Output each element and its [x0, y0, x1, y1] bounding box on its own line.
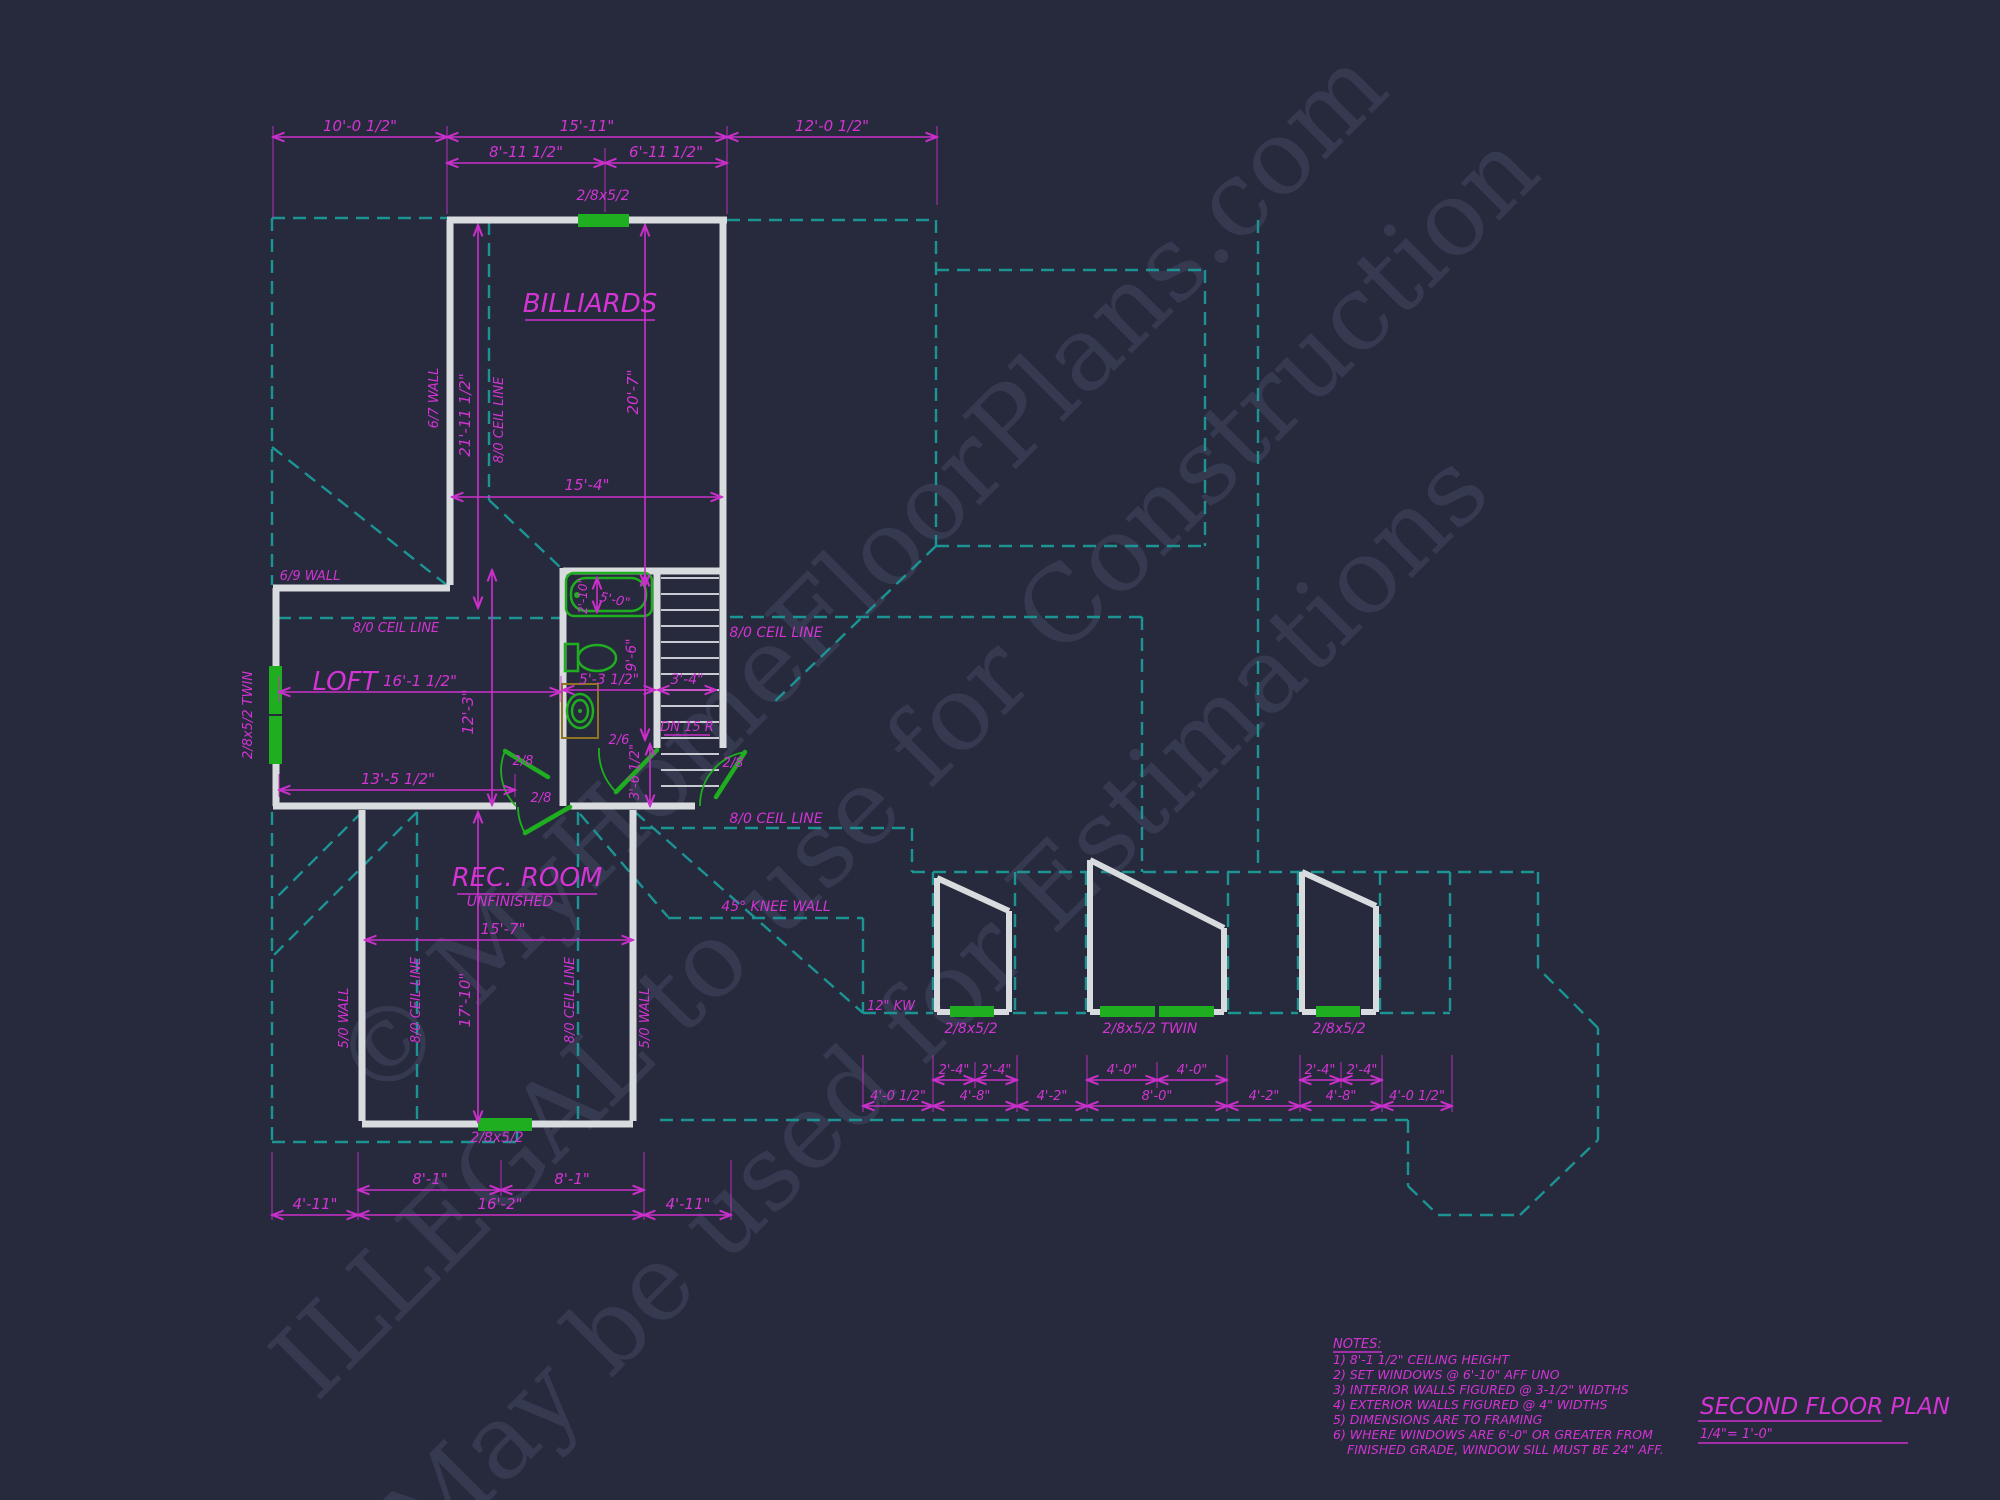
sink-drain — [578, 709, 582, 713]
dim-dormer-row2-6: 4'-8" — [1326, 1089, 1357, 1104]
dim-dormer-row2-5: 4'-2" — [1249, 1089, 1280, 1104]
dim-stair-width: 3'-4" — [670, 672, 703, 688]
window-loft-twin-a — [269, 666, 282, 714]
knee-wall-12-label: 12" KW — [867, 999, 916, 1014]
dim-top-sub-right: 6'-11 1/2" — [629, 143, 703, 161]
note-item-2: 2) SET WINDOWS @ 6'-10" AFF UNO — [1333, 1367, 1560, 1382]
note-item-6: 6) WHERE WINDOWS ARE 6'-0" OR GREATER FR… — [1333, 1427, 1653, 1442]
ceil-line-label-loft: 8/0 CEIL LINE — [353, 621, 440, 636]
wall-label-rec-right: 5/0 WALL — [638, 988, 653, 1049]
dim-top-middle: 15'-11" — [560, 117, 615, 135]
dim-loft-top-width: 16'-1 1/2" — [383, 672, 457, 690]
window-dormer-2-mullion — [1155, 1005, 1159, 1018]
window-dormer-1 — [950, 1006, 994, 1017]
door-label-bath: 2/6 — [609, 733, 630, 748]
note-item-1: 1) 8'-1 1/2" CEILING HEIGHT — [1333, 1352, 1511, 1367]
window-loft-twin-b — [269, 716, 282, 764]
window-billiards-top — [578, 214, 629, 227]
note-item-4: 4) EXTERIOR WALLS FIGURED @ 4" WIDTHS — [1333, 1397, 1608, 1412]
dim-top-right: 12'-0 1/2" — [795, 117, 869, 135]
dim-dormer-row2-2: 4'-8" — [960, 1089, 991, 1104]
dim-dormer-row2-3: 4'-2" — [1037, 1089, 1068, 1104]
dim-top-left: 10'-0 1/2" — [323, 117, 397, 135]
window-label-dormer-1: 2/8x5/2 — [944, 1021, 997, 1037]
dim-tub-length: 5'-0" — [598, 590, 631, 611]
dim-dormer-row2-7: 4'-0 1/2" — [1389, 1089, 1445, 1104]
door-label-rec-lower: 2/8 — [531, 791, 552, 806]
dim-dormer3-a: 2'-4" — [1305, 1063, 1336, 1078]
watermark: © MyHomeFloorPlans.com ILLEGAL to use fo… — [248, 24, 1562, 1500]
window-label-loft-twin: 2/8x5/2 TWIN — [241, 671, 256, 759]
watermark-line-1: © MyHomeFloorPlans.com — [309, 24, 1409, 1124]
sheet-title: SECOND FLOOR PLAN — [1700, 1394, 1950, 1420]
dim-bath-height: 9'-6" — [624, 638, 640, 671]
dim-dormer3-b: 2'-4" — [1347, 1063, 1378, 1078]
dim-rec-width: 15'-7" — [480, 920, 525, 938]
wall-label-billiards-left: 6/7 WALL — [427, 368, 442, 429]
dim-loft-height: 12'-3" — [459, 689, 477, 734]
dim-loft-bottom-width: 13'-5 1/2" — [361, 770, 435, 788]
window-dormer-3 — [1316, 1006, 1360, 1017]
toilet-tank — [565, 644, 578, 671]
floor-plan-sheet: © MyHomeFloorPlans.com ILLEGAL to use fo… — [0, 0, 2000, 1500]
room-label-rec-room: REC. ROOM — [452, 863, 603, 893]
note-item-5: 5) DIMENSIONS ARE TO FRAMING — [1333, 1412, 1543, 1427]
dim-billiards-height-inner: 21'-11 1/2" — [456, 373, 474, 457]
ceil-line-label-stair-right: 8/0 CEIL LINE — [729, 625, 822, 641]
notes-heading: NOTES: — [1333, 1337, 1382, 1352]
note-item-6b: FINISHED GRADE, WINDOW SILL MUST BE 24" … — [1347, 1442, 1664, 1457]
knee-wall-label: 45° KNEE WALL — [721, 899, 830, 915]
window-label-rec-bottom: 2/8x5/2 — [470, 1130, 523, 1146]
watermark-line-2: ILLEGAL to use for Construction — [248, 108, 1562, 1422]
dim-bottom-81-a: 8'-1" — [412, 1170, 448, 1188]
dim-door-offset: 3'-6 1/2" — [628, 744, 643, 800]
window-label-dormer-3: 2/8x5/2 — [1312, 1021, 1365, 1037]
notes-block: NOTES: 1) 8'-1 1/2" CEILING HEIGHT 2) SE… — [1333, 1337, 1664, 1457]
ceil-line-label-rec-upper-right: 8/0 CEIL LINE — [729, 811, 822, 827]
dim-dormer1-b: 2'-4" — [981, 1063, 1012, 1078]
dim-tub-width: 2'-10" — [576, 578, 590, 614]
dim-bottom-81-b: 8'-1" — [554, 1170, 590, 1188]
dim-bath-width: 5'-3 1/2" — [579, 672, 639, 688]
dim-top-sub-left: 8'-11 1/2" — [489, 143, 563, 161]
sheet-scale: 1/4"= 1'-0" — [1700, 1427, 1773, 1442]
dim-bottom-411-right: 4'-11" — [665, 1195, 710, 1213]
title-block: SECOND FLOOR PLAN 1/4"= 1'-0" — [1698, 1394, 1950, 1443]
dim-dormer-row2-4: 8'-0" — [1142, 1089, 1173, 1104]
ceil-line-label-rec-left: 8/0 CEIL LINE — [409, 956, 424, 1043]
room-label-billiards: BILLIARDS — [523, 289, 658, 319]
dim-bottom-162: 16'-2" — [477, 1195, 522, 1213]
dim-dormer2-a: 4'-0" — [1107, 1063, 1138, 1078]
ceil-line-label-billiards: 8/0 CEIL LINE — [492, 376, 507, 463]
dim-rec-height: 17'-10" — [456, 973, 474, 1028]
room-label-rec-sub: UNFINISHED — [467, 894, 554, 910]
dim-billiards-width: 15'-4" — [564, 476, 609, 494]
ceil-line-label-rec-right: 8/0 CEIL LINE — [563, 956, 578, 1043]
dim-dormer-row2-1: 4'-0 1/2" — [870, 1089, 926, 1104]
dim-bottom-411-left: 4'-11" — [292, 1195, 337, 1213]
floor-plan-canvas: © MyHomeFloorPlans.com ILLEGAL to use fo… — [0, 0, 2000, 1500]
door-label-stair: 2/8 — [723, 756, 744, 771]
dim-billiards-height-outer: 20'-7" — [624, 369, 642, 414]
note-item-3: 3) INTERIOR WALLS FIGURED @ 3-1/2" WIDTH… — [1333, 1382, 1629, 1397]
dim-dormer2-b: 4'-0" — [1177, 1063, 1208, 1078]
stair-direction-label: DN 15 R — [660, 720, 714, 735]
window-label-billiards-top: 2/8x5/2 — [576, 188, 629, 204]
wall-label-loft-top: 6/9 WALL — [280, 569, 341, 584]
window-label-dormer-2: 2/8x5/2 TWIN — [1103, 1021, 1198, 1037]
wall-label-rec-left: 5/0 WALL — [337, 988, 352, 1049]
room-label-loft: LOFT — [313, 667, 380, 697]
toilet-bowl — [578, 645, 616, 671]
door-label-rec-upper: 2/8 — [513, 754, 534, 769]
dim-dormer1-a: 2'-4" — [939, 1063, 970, 1078]
